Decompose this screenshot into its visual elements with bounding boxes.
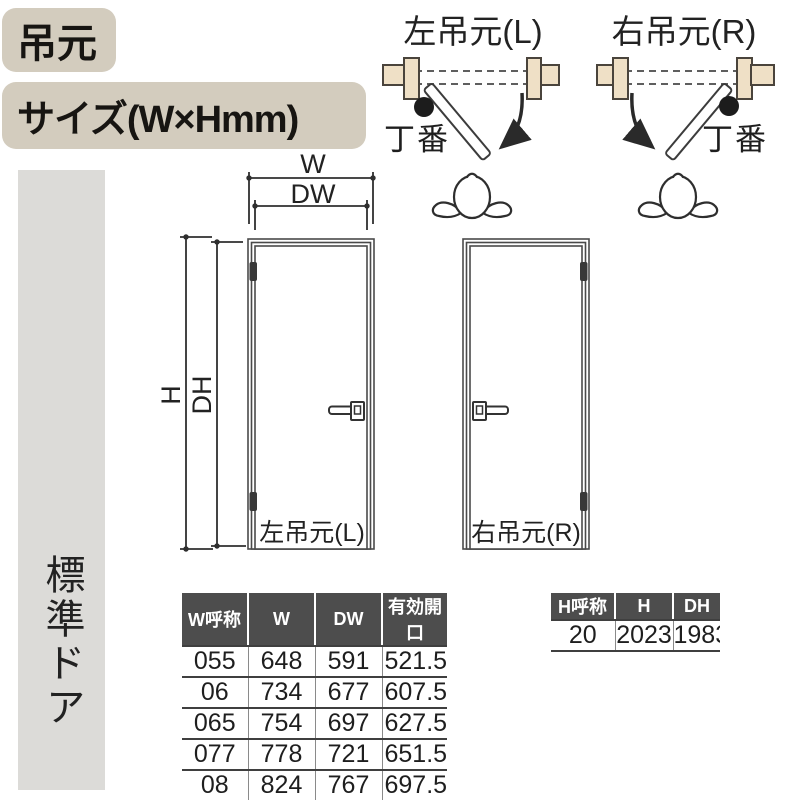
cell: 697 (315, 708, 382, 739)
cell: 1983 (673, 620, 720, 651)
width-spec-table: W呼称 W DW 有効開口 055 648 591 521.5 06 734 6… (182, 593, 447, 800)
hinge-callout-left: 丁番 (384, 114, 450, 159)
wall-segment (383, 65, 405, 85)
swing-arrow (504, 93, 522, 145)
cell: 754 (248, 708, 315, 739)
person-top-view-icon (433, 174, 511, 218)
lever-handle (329, 402, 364, 420)
col-header-opening: 有効開口 (382, 593, 447, 646)
door-jamb (613, 58, 628, 99)
left-swing-title: 左吊元(L) (393, 5, 553, 53)
cell: 627.5 (382, 708, 447, 739)
right-door-elevation (463, 239, 589, 549)
cell: 778 (248, 739, 315, 770)
cell: 824 (248, 770, 315, 800)
table-row: 065 754 697 627.5 (182, 708, 447, 739)
table-row: 20 2023 1983 (551, 620, 720, 651)
cell: 055 (182, 646, 248, 677)
hinge-dot (719, 96, 739, 116)
hinge-callout-right: 丁番 (702, 114, 768, 159)
door-hinge (580, 492, 588, 511)
col-header-dw: DW (315, 593, 382, 646)
right-door-label: 右吊元(R) (465, 513, 587, 549)
wall-segment (597, 65, 615, 85)
person-top-view-icon (639, 174, 717, 218)
cell: 767 (315, 770, 382, 800)
standard-door-sidebar: 標準ドア (18, 170, 105, 790)
dim-label-h: H (158, 382, 184, 408)
door-jamb (404, 58, 419, 99)
cell: 697.5 (382, 770, 447, 800)
col-header-dh: DH (673, 593, 720, 620)
col-header-h: H (615, 593, 673, 620)
table-row: 055 648 591 521.5 (182, 646, 447, 677)
cell: 2023 (615, 620, 673, 651)
left-door-elevation (248, 239, 374, 549)
cell: 677 (315, 677, 382, 708)
dim-label-dh: DH (189, 373, 215, 417)
dim-label-w: W (296, 149, 330, 180)
cell: 521.5 (382, 646, 447, 677)
hinge-origin-heading: 吊元 (2, 8, 116, 72)
cell: 065 (182, 708, 248, 739)
standard-door-label: 標準ドア (33, 554, 91, 730)
cell: 721 (315, 739, 382, 770)
cell: 651.5 (382, 739, 447, 770)
cell: 20 (551, 620, 615, 651)
cell: 607.5 (382, 677, 447, 708)
cell: 648 (248, 646, 315, 677)
door-jamb (527, 58, 541, 99)
door-spec-sheet: 吊元 サイズ(W×Hmm) 標準ドア (0, 0, 800, 800)
door-jamb (737, 58, 752, 99)
col-header-w-name: W呼称 (182, 593, 248, 646)
height-spec-table: H呼称 H DH 20 2023 1983 (551, 593, 720, 652)
size-heading: サイズ(W×Hmm) (2, 82, 366, 149)
wall-segment (751, 65, 774, 85)
cell: 734 (248, 677, 315, 708)
left-door-label: 左吊元(L) (251, 513, 373, 549)
col-header-h-name: H呼称 (551, 593, 615, 620)
cell: 591 (315, 646, 382, 677)
table-header-row: W呼称 W DW 有効開口 (182, 593, 447, 646)
right-swing-title: 右吊元(R) (604, 5, 764, 53)
cell: 08 (182, 770, 248, 800)
table-row: 06 734 677 607.5 (182, 677, 447, 708)
door-hinge (250, 492, 258, 511)
cell: 06 (182, 677, 248, 708)
table-row: 08 824 767 697.5 (182, 770, 447, 800)
swing-arrow (632, 93, 650, 145)
table-header-row: H呼称 H DH (551, 593, 720, 620)
door-hinge (580, 262, 588, 281)
dim-label-dw: DW (284, 179, 342, 210)
col-header-w: W (248, 593, 315, 646)
lever-handle (473, 402, 508, 420)
wall-segment (541, 65, 559, 85)
door-hinge (250, 262, 258, 281)
table-row: 077 778 721 651.5 (182, 739, 447, 770)
cell: 077 (182, 739, 248, 770)
